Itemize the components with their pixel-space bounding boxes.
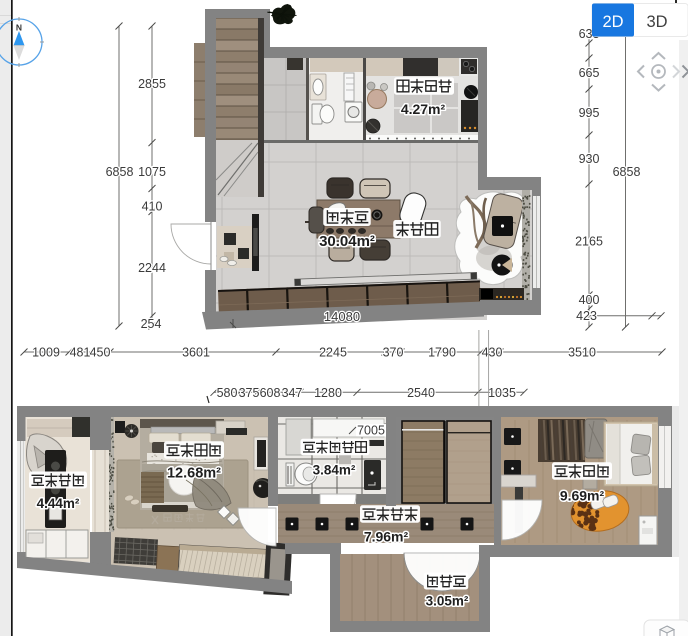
svg-text:7.96m²: 7.96m² [364,529,409,545]
svg-text:1009: 1009 [32,346,60,360]
svg-text:608: 608 [260,386,281,400]
svg-text:2540: 2540 [407,386,435,400]
svg-text:1075: 1075 [138,165,166,179]
svg-text:665: 665 [579,66,600,80]
svg-text:2244: 2244 [138,261,166,275]
svg-text:1790: 1790 [428,346,456,360]
svg-text:930: 930 [579,152,600,166]
svg-text:9.69m²: 9.69m² [560,488,605,504]
svg-text:450: 450 [90,346,111,360]
svg-text:4.44m²: 4.44m² [37,496,80,511]
svg-text:3601: 3601 [182,346,210,360]
svg-text:3.84m²: 3.84m² [313,463,356,478]
svg-text:370: 370 [383,346,404,360]
svg-text:347: 347 [282,386,303,400]
svg-text:6858: 6858 [613,165,641,179]
svg-text:2165: 2165 [575,235,603,249]
svg-text:430: 430 [482,346,503,360]
svg-text:423: 423 [576,309,597,323]
svg-text:995: 995 [579,106,600,120]
svg-text:2D: 2D [602,13,623,31]
svg-text:12.68m²: 12.68m² [167,466,221,482]
svg-text:4.27m²: 4.27m² [401,101,446,117]
svg-text:410: 410 [142,200,163,214]
svg-text:2855: 2855 [138,77,166,91]
svg-text:3510: 3510 [568,346,596,360]
svg-text:30.04m²: 30.04m² [319,233,375,250]
svg-text:3.05m²: 3.05m² [426,594,469,609]
svg-text:1035: 1035 [488,386,516,400]
svg-text:375: 375 [239,386,260,400]
svg-text:7005: 7005 [357,424,385,438]
svg-text:1280: 1280 [314,386,342,400]
svg-text:254: 254 [141,317,162,331]
svg-text:2245: 2245 [319,346,347,360]
svg-text:481: 481 [70,346,91,360]
svg-text:3D: 3D [646,13,667,31]
svg-text:400: 400 [579,293,600,307]
svg-text:14080: 14080 [324,309,360,324]
svg-text:6858: 6858 [106,165,134,179]
svg-text:580: 580 [217,386,238,400]
